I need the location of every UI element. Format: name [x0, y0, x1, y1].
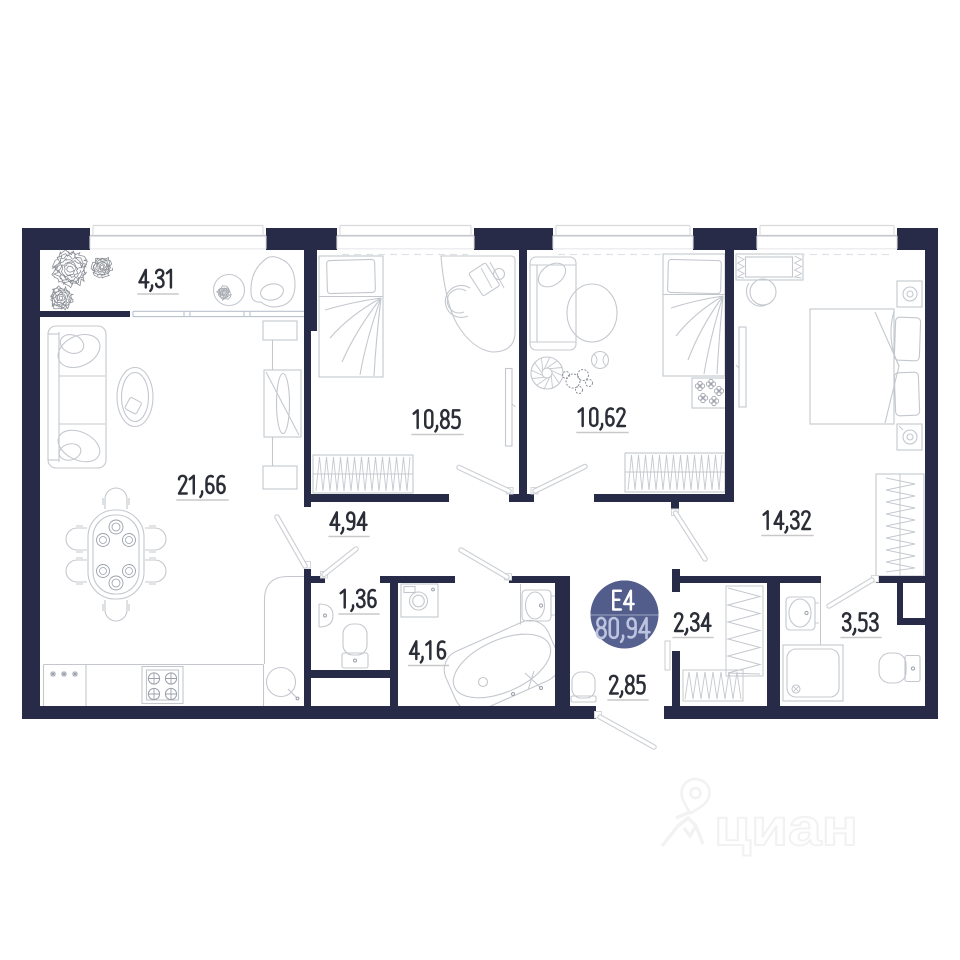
svg-text:циан: циан: [714, 799, 858, 857]
